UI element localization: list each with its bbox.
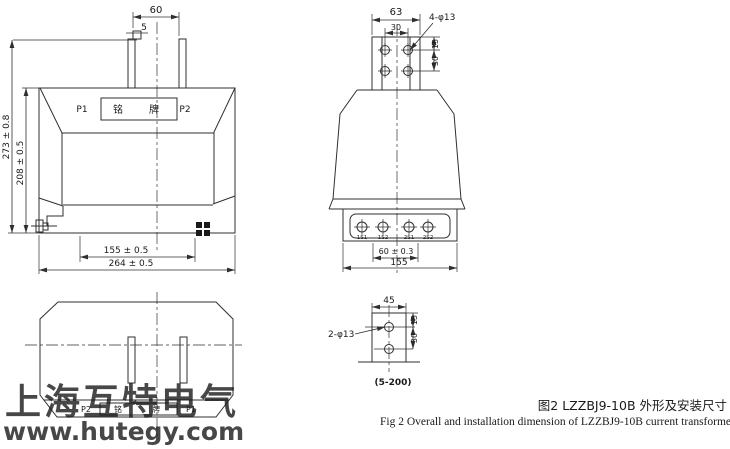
terminal-tab	[133, 31, 141, 39]
ground-step	[47, 206, 63, 226]
dim-hole-row-spacing: 30	[431, 56, 440, 66]
nameplate-text: 铭牌	[113, 103, 185, 116]
dim-plate-width: 63	[390, 7, 403, 18]
dim-hole-top-offset: 15	[410, 315, 419, 325]
watermark-website: www.hutegy.com	[3, 417, 244, 446]
dim-hole-col-spacing: 30	[391, 23, 401, 32]
secondary-terminal-box: 1S1 1S2 2S1 2S2	[343, 209, 457, 241]
dim-total-height: 273 ± 0.8	[2, 114, 12, 159]
caption-en: Fig 2 Overall and installation dimension…	[380, 416, 730, 428]
label-bracket-holes: 2-φ13	[328, 330, 354, 340]
technical-drawing: 60 5 P1 铭牌 P2 273 ± 0.8	[0, 0, 730, 449]
terminal-label-2s2: 2S2	[423, 235, 434, 241]
terminal-label-2s1: 2S1	[404, 235, 415, 241]
mounting-holes-4	[378, 43, 415, 78]
terminal-label-1s2: 1S2	[378, 235, 389, 241]
dim-terminal-spacing-top: 60	[150, 5, 163, 16]
figure-caption: 图2 LZZBJ9-10B 外形及安装尺寸 Fig 2 Overall and …	[380, 398, 730, 428]
slot	[180, 337, 187, 383]
terminal-label-1s1: 1S1	[357, 235, 368, 241]
dim-total-width: 264 ± 0.5	[109, 259, 154, 269]
dim-bracket-width: 45	[383, 296, 394, 306]
caption-zh: 图2 LZZBJ9-10B 外形及安装尺寸	[538, 398, 727, 413]
dim-mount-hole-spacing: 155 ± 0.5	[104, 246, 149, 256]
dim-hole-top-offset: 15	[431, 39, 440, 49]
label-p2: P2	[179, 105, 190, 115]
datasheet-figure-page: 60 5 P1 铭牌 P2 273 ± 0.8	[0, 0, 730, 449]
range-note: (5-200)	[374, 378, 411, 388]
front-face	[62, 132, 214, 205]
bracket-detail: 45 15 30 2-φ13 (5-200)	[328, 296, 420, 388]
dim-secondary-spacing: 60 ± 0.3	[379, 247, 414, 256]
earth-terminal	[31, 220, 57, 232]
dim-base-width: 155	[390, 258, 407, 268]
secondary-terminal-block	[196, 222, 210, 236]
dim-body-height: 208 ± 0.5	[16, 141, 26, 186]
dim-tab-offset: 5	[141, 23, 147, 33]
primary-terminal-bar	[179, 39, 186, 88]
primary-terminal-plate	[372, 37, 420, 90]
front-view: 60 5 P1 铭牌 P2 273 ± 0.8	[2, 5, 235, 274]
label-p1: P1	[76, 105, 87, 115]
side-body-outline	[329, 90, 465, 209]
watermark: 上海互特电气 www.hutegy.com	[3, 382, 244, 446]
dim-hole-row-spacing: 30	[410, 333, 419, 343]
side-view: 63 30 4-φ13 15 30 1S1	[329, 7, 465, 274]
label-top-holes: 4-φ13	[429, 13, 455, 23]
slot	[128, 337, 135, 383]
primary-terminal-bar	[128, 39, 135, 88]
